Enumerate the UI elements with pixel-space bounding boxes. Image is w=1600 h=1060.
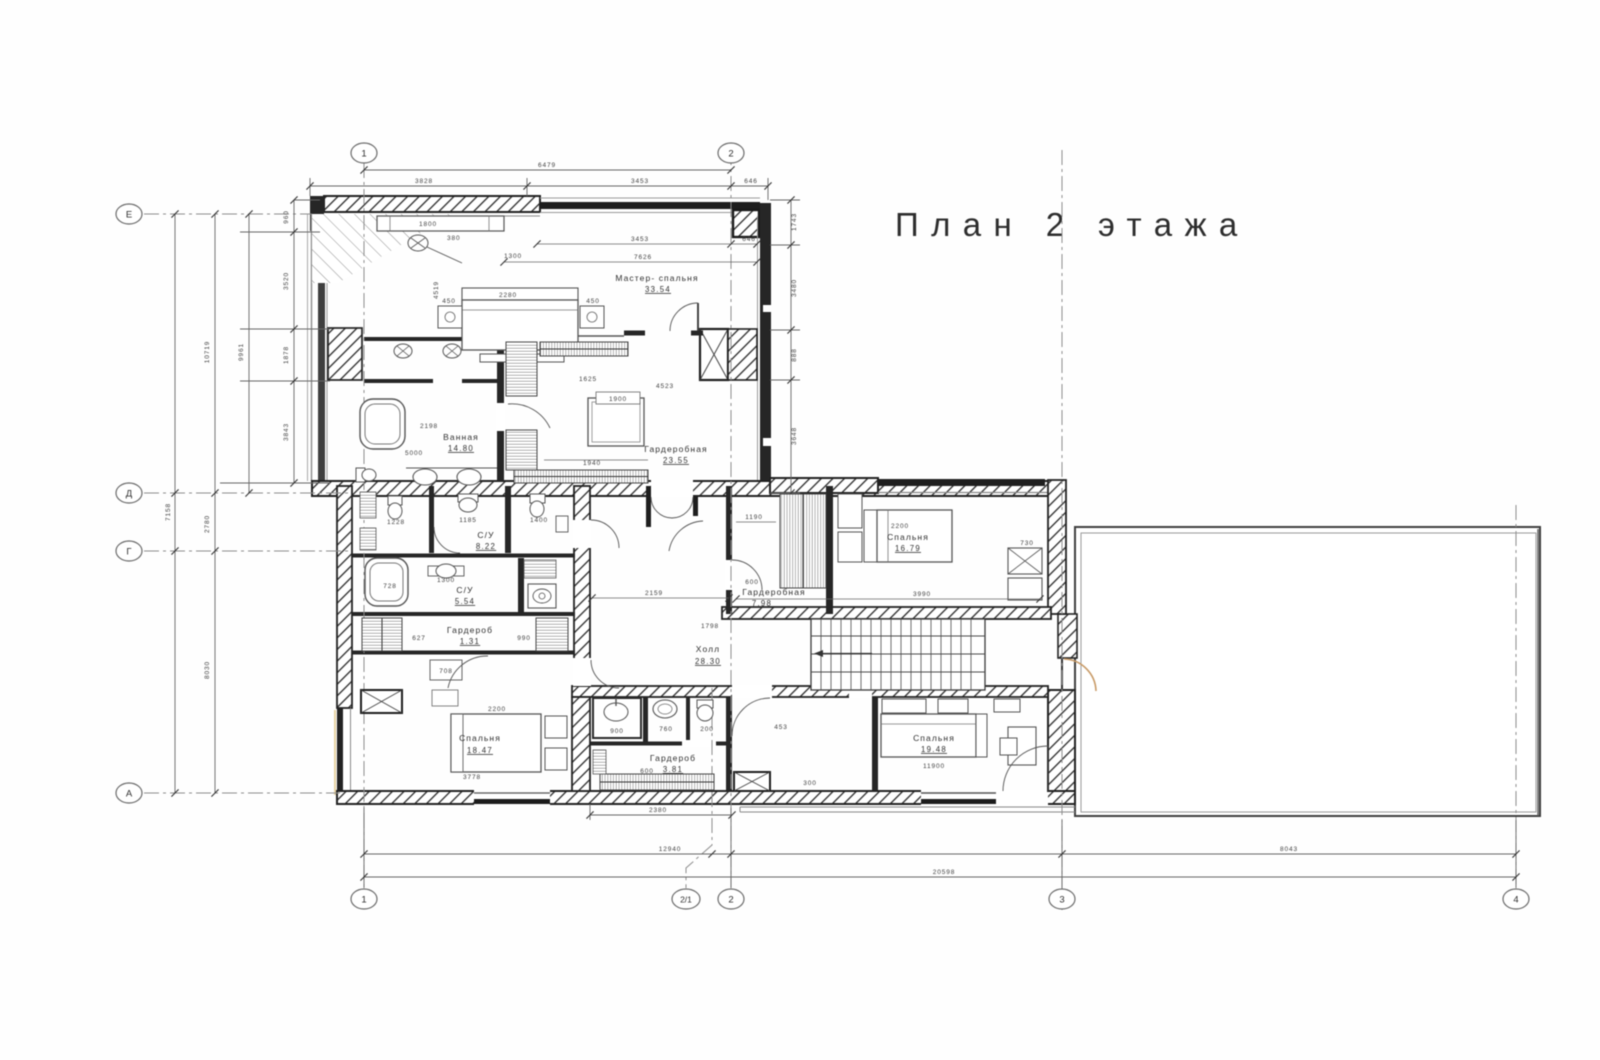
svg-text:2198: 2198 xyxy=(420,423,438,430)
svg-text:1743: 1743 xyxy=(791,213,798,231)
svg-text:960: 960 xyxy=(283,210,290,224)
svg-text:1878: 1878 xyxy=(283,346,290,364)
svg-text:А: А xyxy=(126,789,133,800)
svg-text:300: 300 xyxy=(803,780,817,787)
svg-text:Д: Д xyxy=(126,489,133,500)
svg-text:3453: 3453 xyxy=(631,178,649,185)
svg-text:2: 2 xyxy=(728,895,733,906)
svg-text:2200: 2200 xyxy=(891,523,909,530)
svg-text:3480: 3480 xyxy=(791,279,798,297)
svg-text:627: 627 xyxy=(412,635,426,642)
svg-text:1: 1 xyxy=(361,895,366,906)
svg-text:2780: 2780 xyxy=(204,515,211,533)
svg-text:1300: 1300 xyxy=(437,577,455,584)
svg-text:Спальня: Спальня xyxy=(913,733,955,743)
svg-text:646: 646 xyxy=(742,236,756,243)
svg-text:8.22: 8.22 xyxy=(476,542,496,551)
svg-text:Спальня: Спальня xyxy=(887,532,929,542)
svg-text:760: 760 xyxy=(659,726,673,733)
svg-text:8030: 8030 xyxy=(204,661,211,679)
svg-text:3990: 3990 xyxy=(913,591,931,598)
svg-text:3.81: 3.81 xyxy=(663,765,683,774)
svg-text:888: 888 xyxy=(791,348,798,362)
svg-text:7626: 7626 xyxy=(634,254,652,261)
svg-text:2200: 2200 xyxy=(488,706,506,713)
svg-text:1185: 1185 xyxy=(459,517,477,524)
svg-text:646: 646 xyxy=(744,178,758,185)
svg-text:708: 708 xyxy=(439,668,453,675)
svg-text:3: 3 xyxy=(1059,895,1064,906)
svg-text:7.98: 7.98 xyxy=(752,599,772,608)
svg-text:2/1: 2/1 xyxy=(680,895,692,905)
svg-text:450: 450 xyxy=(442,298,456,305)
svg-text:Г: Г xyxy=(126,547,131,558)
svg-text:5.54: 5.54 xyxy=(455,597,475,606)
svg-text:380: 380 xyxy=(447,235,461,242)
svg-text:18.47: 18.47 xyxy=(467,746,493,755)
svg-text:1.31: 1.31 xyxy=(460,637,480,646)
svg-text:1900: 1900 xyxy=(609,396,627,403)
svg-text:4519: 4519 xyxy=(433,281,440,299)
svg-text:11900: 11900 xyxy=(923,763,945,770)
svg-text:3828: 3828 xyxy=(415,178,433,185)
svg-text:Гардероб: Гардероб xyxy=(650,753,696,763)
svg-text:5000: 5000 xyxy=(405,450,423,457)
svg-text:20598: 20598 xyxy=(933,869,956,876)
svg-text:3778: 3778 xyxy=(463,774,481,781)
svg-text:План 2 этажа: План 2 этажа xyxy=(895,206,1250,243)
svg-text:450: 450 xyxy=(586,298,600,305)
svg-text:Гардеробная: Гардеробная xyxy=(644,444,708,454)
svg-text:1190: 1190 xyxy=(745,514,763,521)
svg-text:33.54: 33.54 xyxy=(645,285,671,294)
svg-text:990: 990 xyxy=(517,635,531,642)
svg-text:1228: 1228 xyxy=(387,519,405,526)
svg-text:С/У: С/У xyxy=(456,585,473,595)
svg-text:Спальня: Спальня xyxy=(459,733,501,743)
svg-text:2159: 2159 xyxy=(645,590,663,597)
svg-text:1625: 1625 xyxy=(579,376,597,383)
svg-text:1798: 1798 xyxy=(701,623,719,630)
svg-text:200: 200 xyxy=(700,726,714,733)
svg-text:7158: 7158 xyxy=(165,503,172,521)
svg-text:10719: 10719 xyxy=(204,341,211,364)
svg-text:Мастер- спальня: Мастер- спальня xyxy=(615,273,698,283)
svg-text:Ванная: Ванная xyxy=(443,432,479,442)
svg-text:14.80: 14.80 xyxy=(448,444,474,453)
svg-text:1800: 1800 xyxy=(419,221,437,228)
svg-text:600: 600 xyxy=(745,579,759,586)
svg-text:1: 1 xyxy=(361,149,366,160)
svg-text:19.48: 19.48 xyxy=(921,745,947,754)
svg-text:1940: 1940 xyxy=(583,460,601,467)
svg-text:Гардероб: Гардероб xyxy=(447,625,493,635)
svg-text:28.30: 28.30 xyxy=(695,657,721,666)
svg-text:3843: 3843 xyxy=(283,423,290,441)
svg-text:728: 728 xyxy=(383,583,397,590)
svg-text:23.55: 23.55 xyxy=(663,456,689,465)
svg-text:9961: 9961 xyxy=(238,343,245,361)
svg-text:С/У: С/У xyxy=(477,530,494,540)
svg-text:2: 2 xyxy=(728,149,733,160)
svg-text:3453: 3453 xyxy=(631,236,649,243)
svg-text:4: 4 xyxy=(1513,895,1518,906)
svg-text:453: 453 xyxy=(774,724,788,731)
svg-text:730: 730 xyxy=(1020,540,1034,547)
svg-text:2380: 2380 xyxy=(649,807,667,814)
svg-text:8043: 8043 xyxy=(1280,846,1298,853)
svg-text:2280: 2280 xyxy=(499,292,517,299)
svg-text:Холл: Холл xyxy=(696,644,720,654)
svg-text:12940: 12940 xyxy=(659,846,682,853)
svg-text:3520: 3520 xyxy=(283,272,290,290)
svg-text:Е: Е xyxy=(126,210,132,221)
svg-text:1400: 1400 xyxy=(530,517,548,524)
svg-text:900: 900 xyxy=(610,728,624,735)
svg-text:16.79: 16.79 xyxy=(895,544,921,553)
svg-text:4523: 4523 xyxy=(656,383,674,390)
svg-text:6479: 6479 xyxy=(538,162,556,169)
svg-text:3648: 3648 xyxy=(791,427,798,445)
